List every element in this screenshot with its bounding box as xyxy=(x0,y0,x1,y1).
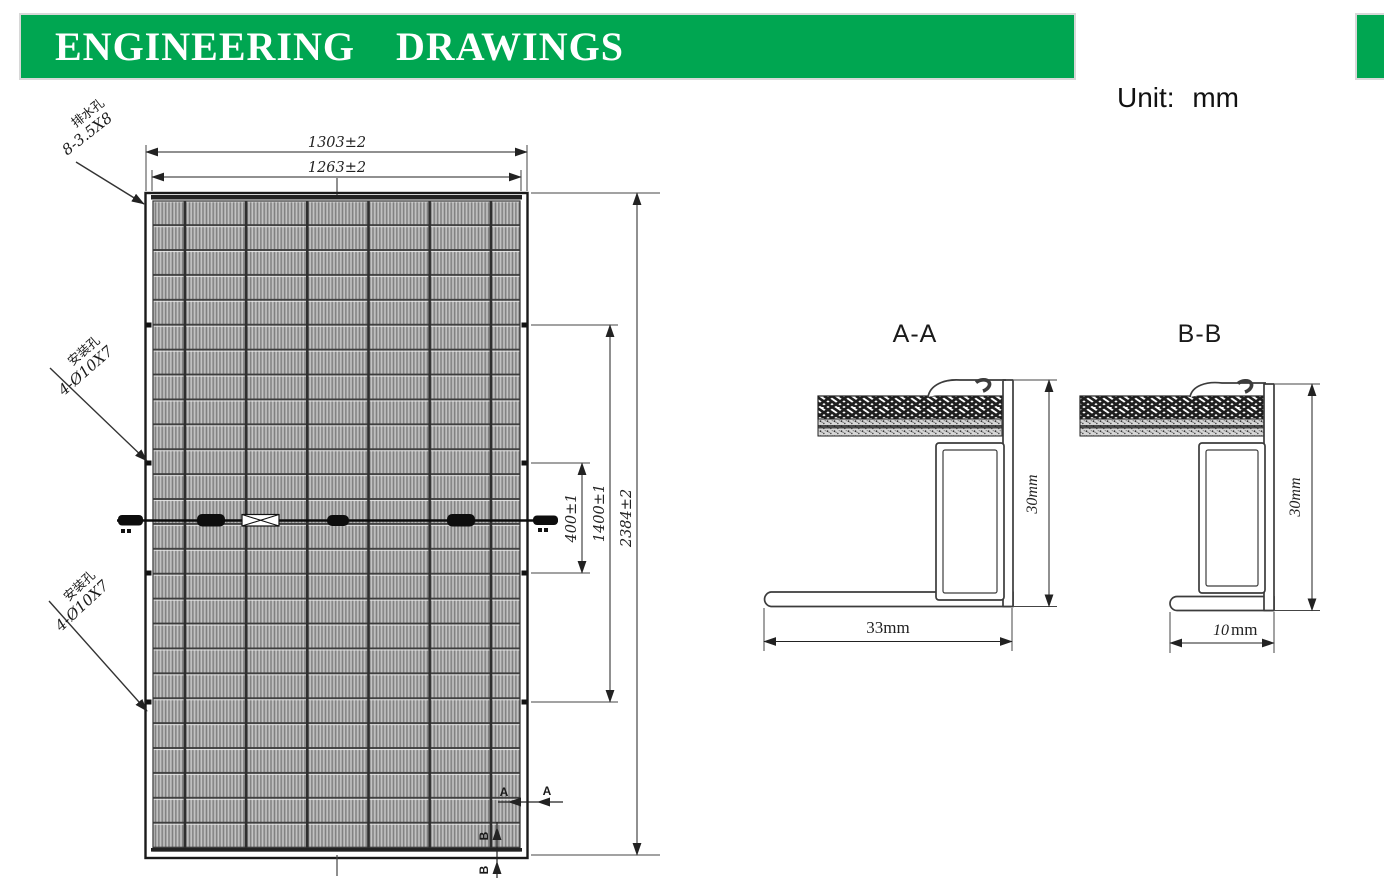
engineering-drawing-canvas: 1303±2 1263±2 400±1 1400±1 2384±2 排水孔 8-… xyxy=(0,0,1384,883)
mounting-hole-callout-2: 安装孔 4-Ø10X7 xyxy=(41,565,147,711)
cable-connector-left xyxy=(118,515,143,526)
module-front-view xyxy=(117,193,558,876)
section-bb-title: B-B xyxy=(1178,320,1223,348)
cut-mark-a-inner: A xyxy=(500,785,509,799)
bb-width-dim-unit: mm xyxy=(1231,620,1257,639)
drain-hole-callout: 排水孔 8-3.5X8 xyxy=(49,95,144,204)
section-aa-title: A-A xyxy=(893,320,938,348)
bottom-frame-band xyxy=(151,848,522,852)
aa-height-dim: 30mm xyxy=(1024,474,1041,514)
mounting-hole-callout-1: 安装孔 4-Ø10X7 xyxy=(44,331,147,461)
cable-connector-right xyxy=(533,516,558,526)
cut-mark-b-inner: B xyxy=(477,831,491,840)
bb-glass-layer xyxy=(1080,396,1265,419)
dim-width-outer: 1303±2 xyxy=(308,135,366,151)
bb-width-dim-value: 10 xyxy=(1213,622,1229,639)
bb-height-dim: 30mm xyxy=(1287,477,1304,517)
dim-mount-outer: 1400±1 xyxy=(592,484,608,542)
aa-glass-layer xyxy=(818,396,1002,419)
cut-mark-b-outer: B xyxy=(477,865,491,874)
dim-height: 2384±2 xyxy=(619,489,635,548)
dim-width-inner: 1263±2 xyxy=(308,160,366,176)
cut-mark-a-outer: A xyxy=(543,784,552,798)
cable-splice-bowtie xyxy=(242,515,279,527)
dim-mount-inner: 400±1 xyxy=(564,493,580,543)
section-view-aa: A-A 30mm 33mm xyxy=(764,320,1057,651)
section-view-bb: B-B 30mm 10 mm xyxy=(1080,320,1320,653)
aa-width-dim: 33mm xyxy=(866,618,909,637)
